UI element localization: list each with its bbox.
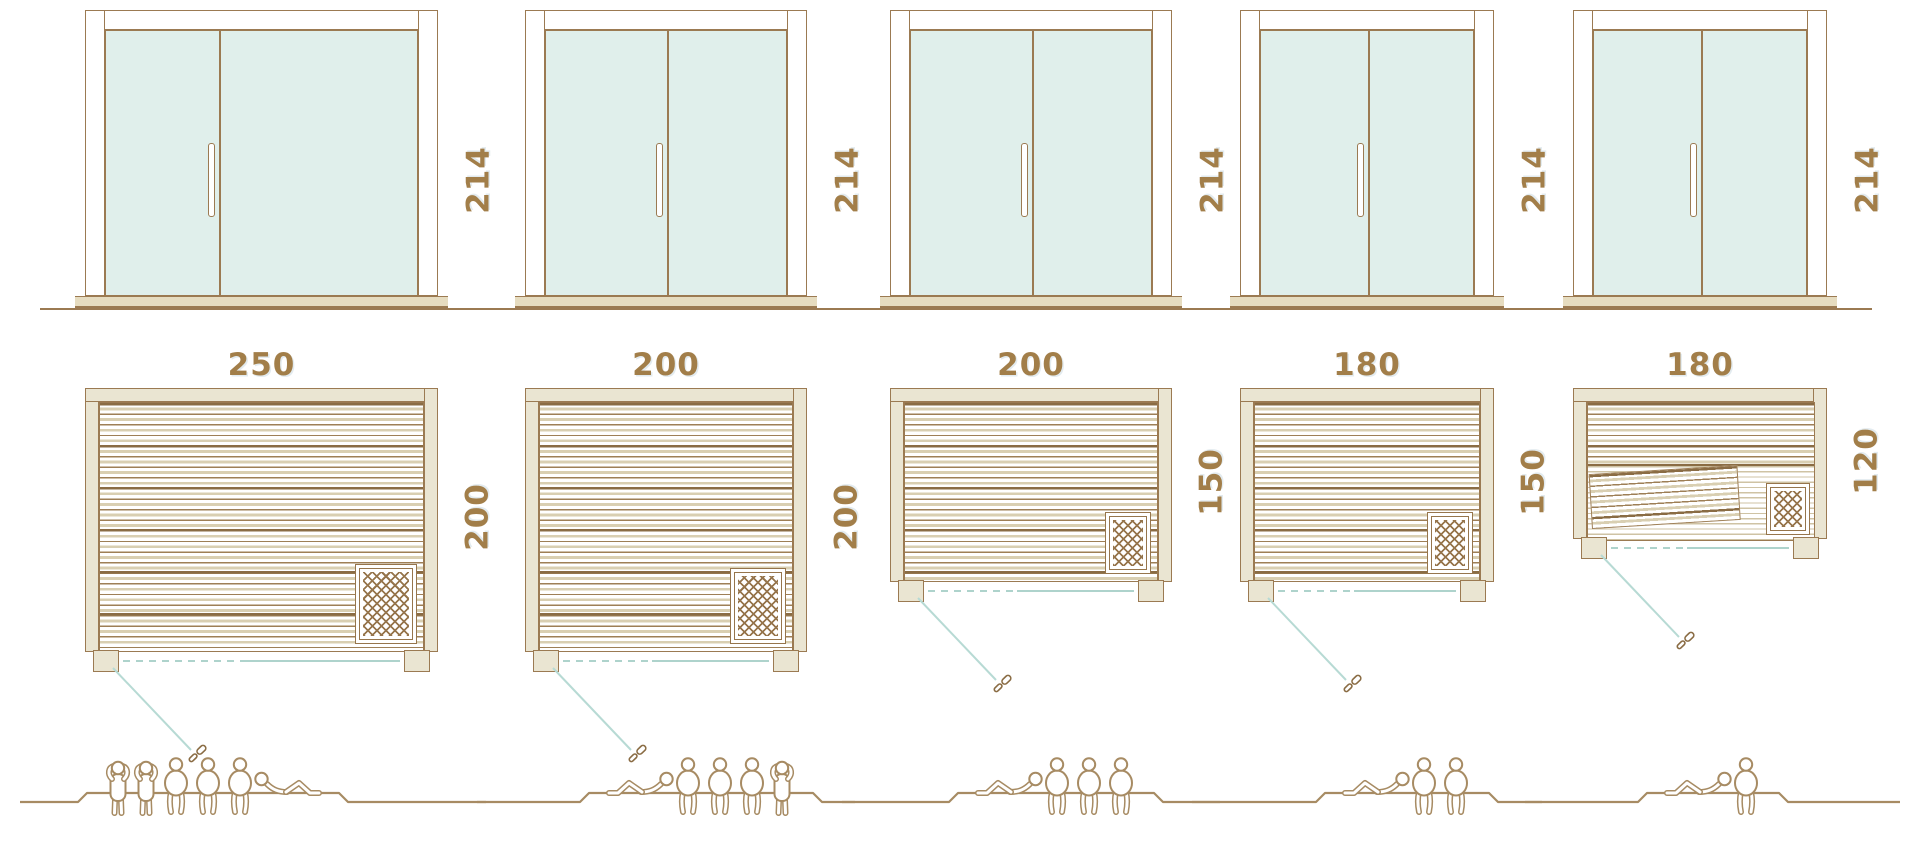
door-elevation [85,10,438,296]
door-sill [75,296,448,308]
sauna-heater [1105,512,1151,574]
plan-top-wall [525,388,807,402]
capacity-people-group [1525,733,1900,833]
capacity-people-group [842,733,1220,833]
plan-top-wall [890,388,1172,402]
capacity-people-group [477,733,855,833]
plan-depth-label: 150 [1519,448,1550,516]
door-leaf-divider [1368,31,1370,295]
door-glass [105,30,418,296]
elevation-ground-line [1528,308,1872,310]
door-leaf-divider [667,31,669,295]
plan-top-wall [1573,388,1827,402]
plan-interior-benches [539,402,793,652]
person-standing-icon [109,762,127,813]
door-height-label: 214 [833,146,864,214]
plan-interior-benches [1254,402,1480,582]
door-left-post [890,10,910,296]
door-leaf-divider [219,31,221,295]
plan-interior-benches [99,402,424,652]
door-header-panel [543,10,789,30]
door-pull-handle [1021,143,1028,217]
plan-tilted-lounger [1589,465,1741,529]
heater-lattice-icon [1774,491,1802,527]
bench-ground-line [1192,793,1542,802]
plan-doorpost-stub-right [1793,537,1819,559]
door-sill [1230,296,1504,308]
door-right-post [418,10,438,296]
door-elevation [890,10,1172,296]
bench-ground-line [20,793,486,802]
sauna-size-diagram: 2142502002142002002142001502141801502141… [0,0,1920,843]
person-standing-icon [773,762,791,813]
heater-lattice-icon [1113,520,1143,566]
door-glass [1260,30,1474,296]
plan-width-label: 200 [997,350,1065,381]
person-sitting-icon [1445,758,1467,812]
plan-right-wall [1480,388,1494,582]
door-pull-handle [208,143,215,217]
plan-interior-benches [904,402,1158,582]
heater-lattice-icon [1435,520,1465,566]
plan-top-wall [1240,388,1494,402]
plan-width-label: 200 [632,350,700,381]
plan-left-wall [85,388,99,652]
plan-doorpost-stub-right [404,650,430,672]
door-right-post [1152,10,1172,296]
plan-depth-label: 200 [832,483,863,551]
person-sitting-icon [741,758,763,812]
person-reclining_right-icon [255,773,319,793]
person-sitting-icon [197,758,219,812]
door-left-post [1240,10,1260,296]
door-sill [515,296,817,308]
door-pull-handle [1357,143,1364,217]
door-right-post [1807,10,1827,296]
door-header-panel [1591,10,1809,30]
door-elevation [525,10,807,296]
plan-depth-label: 200 [463,483,494,551]
person-sitting-icon [677,758,699,812]
door-elevation [1573,10,1827,296]
door-sill [880,296,1182,308]
elevation-ground-line [1195,308,1539,310]
plan-right-wall [793,388,807,652]
person-sitting-icon [1413,758,1435,812]
door-leaf-divider [1701,31,1703,295]
plan-width-label: 180 [1666,350,1734,381]
door-left-post [525,10,545,296]
plan-doorpost-stub-right [773,650,799,672]
person-sitting-icon [1078,758,1100,812]
sauna-heater [1427,512,1473,574]
door-leaf-divider [1032,31,1034,295]
person-sitting-icon [165,758,187,812]
door-height-label: 214 [1520,146,1551,214]
plan-right-wall [1158,388,1172,582]
plan-left-wall [890,388,904,582]
plan-right-wall [424,388,438,652]
sauna-heater [1766,483,1810,535]
sauna-heater [355,564,417,644]
door-pull-handle [1690,143,1697,217]
heater-lattice-icon [363,572,409,636]
bench-ground-line [842,793,1220,802]
person-reclining-icon [1667,773,1731,793]
plan-top-wall [85,388,438,402]
door-glass [545,30,787,296]
door-left-post [1573,10,1593,296]
person-standing-icon [137,762,155,813]
plan-left-wall [525,388,539,652]
door-right-post [787,10,807,296]
heater-frame [1770,487,1806,531]
door-header-panel [908,10,1154,30]
floor-plan [85,388,438,670]
plan-upper-bench [1588,403,1814,466]
elevation-ground-line [845,308,1217,310]
heater-lattice-icon [738,576,778,636]
plan-left-wall [1573,388,1587,539]
door-swing [1587,549,1717,659]
sauna-heater [730,568,786,644]
floor-plan [1573,388,1827,557]
plan-doorpost-stub-right [1138,580,1164,602]
door-height-label: 214 [1198,146,1229,214]
plan-lower-area [1588,466,1814,540]
heater-frame [359,568,413,640]
person-sitting-icon [1735,758,1757,812]
capacity-people-group [1192,733,1542,833]
heater-frame [1431,516,1469,570]
plan-glass-front-fixed [244,660,400,662]
door-left-post [85,10,105,296]
plan-glass-front-fixed [652,660,769,662]
bench-ground-line [477,793,855,802]
door-height-label: 214 [464,146,495,214]
door-height-label: 214 [1853,146,1884,214]
floor-plan [525,388,807,670]
plan-depth-label: 150 [1197,448,1228,516]
door-header-panel [103,10,420,30]
bench-ground-line [1525,793,1900,802]
person-sitting-icon [1110,758,1132,812]
plan-width-label: 250 [228,350,296,381]
floor-plan [1240,388,1494,600]
door-glass [1593,30,1807,296]
elevation-ground-line [40,308,483,310]
plan-width-label: 180 [1333,350,1401,381]
floor-plan [890,388,1172,600]
door-right-post [1474,10,1494,296]
heater-frame [734,572,782,640]
heater-frame [1109,516,1147,570]
plan-glass-front-fixed [1017,590,1134,592]
door-pull-handle [656,143,663,217]
person-reclining-icon [978,773,1042,793]
door-swing [1254,592,1384,702]
person-reclining-icon [1345,773,1409,793]
plan-left-wall [1240,388,1254,582]
door-elevation [1240,10,1494,296]
capacity-people-group [20,733,486,833]
plan-doorpost-stub-right [1460,580,1486,602]
door-header-panel [1258,10,1476,30]
person-sitting-icon [229,758,251,812]
plan-interior-benches [1587,402,1815,541]
person-sitting-icon [1046,758,1068,812]
person-sitting-icon [709,758,731,812]
door-glass [910,30,1152,296]
plan-right-wall [1813,388,1827,539]
door-sill [1563,296,1837,308]
elevation-ground-line [480,308,852,310]
person-reclining-icon [609,773,673,793]
door-swing [904,592,1034,702]
plan-depth-label: 120 [1852,427,1883,495]
